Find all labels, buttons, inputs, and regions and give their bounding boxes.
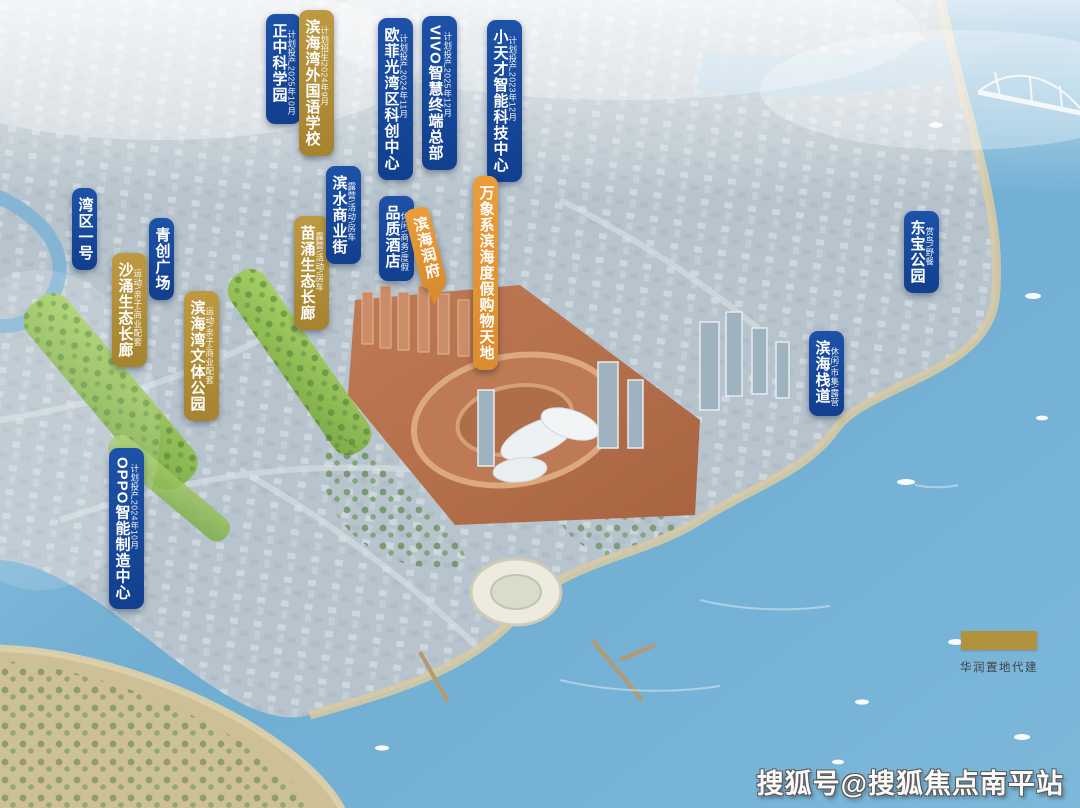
- label-title: 品质酒店: [383, 205, 400, 269]
- label-note: 运动\亲子\商业配套: [133, 269, 143, 347]
- label-title: 滨海湾外国语学校: [303, 19, 320, 147]
- legend-crland: 华润置地代建: [956, 631, 1042, 675]
- label-note: 休闲\市集\露营: [830, 347, 840, 407]
- label-note: 计划投产2025年12月: [443, 32, 453, 117]
- callout-tail: [426, 283, 449, 306]
- label-title: 欧菲光湾区科创中心: [382, 27, 399, 171]
- label-title: 滨水商业街: [330, 175, 347, 255]
- label-title: VIVO智慧终端总部: [426, 25, 443, 161]
- label-title: 滨海湾文体公园: [188, 300, 205, 412]
- label-note: 计划投产2024年10月: [130, 464, 140, 549]
- label-mixc-seaside-mall: 万象系滨海度假购物天地: [473, 176, 498, 370]
- label-qingchuang-plaza: 青创广场: [149, 218, 174, 300]
- label-note: 计划投产2024年11月: [399, 34, 409, 119]
- label-vivo-terminal-hq: VIVO智慧终端总部 计划投产2025年12月: [422, 16, 457, 170]
- label-note: 计划招生2024年9月: [320, 26, 330, 106]
- aerial-masterplan-map: 正中科学园 计划投产2025年10月 滨海湾外国语学校 计划招生2024年9月 …: [0, 0, 1080, 808]
- label-bay-area-no1: 湾区一号: [72, 188, 97, 270]
- label-title: 万象系滨海度假购物天地: [477, 185, 494, 361]
- label-title: 正中科学园: [270, 23, 287, 103]
- label-note: 运动\亲子\商业配套: [205, 307, 215, 385]
- label-miaochong-eco-corridor: 苗涌生态长廊 露营\活动\房车: [294, 216, 329, 330]
- label-note: 计划投产2025年10月: [287, 30, 297, 115]
- label-binhai-boardwalk: 滨海栈道 休闲\市集\露营: [809, 331, 844, 416]
- label-title: OPPO智能制造中心: [113, 457, 130, 600]
- label-title: 东宝公园: [908, 220, 925, 284]
- label-title: 沙涌生态长廊: [116, 262, 133, 358]
- label-binhaiwan-sports-park: 滨海湾文体公园 运动\亲子\商业配套: [184, 291, 219, 421]
- legend-color-swatch: [961, 631, 1037, 650]
- legend-label: 华润置地代建: [956, 659, 1042, 675]
- label-title: 滨海栈道: [813, 340, 830, 404]
- label-note: 计划投产2023年12月: [508, 36, 518, 121]
- label-title: 小天才智能科技中心: [491, 29, 508, 173]
- sohu-watermark: 搜狐号@搜狐焦点南平站: [757, 762, 1064, 801]
- label-binshui-commercial-street: 滨水商业街 露营\活动\房车: [326, 166, 361, 264]
- label-title: 青创广场: [153, 227, 170, 291]
- label-xtc-tech-center: 小天才智能科技中心 计划投产2023年12月: [487, 20, 522, 182]
- label-binhaiwan-foreign-language-school: 滨海湾外国语学校 计划招生2024年9月: [299, 10, 334, 156]
- label-dongbao-park: 东宝公园 赏鸟\野餐: [904, 211, 939, 293]
- aerial-scene-illustration: [0, 0, 1080, 808]
- label-zhengzhong-science-park: 正中科学园 计划投产2025年10月: [266, 14, 301, 124]
- label-note: 赏鸟\野餐: [925, 227, 935, 266]
- label-note: 露营\活动\房车: [315, 232, 325, 292]
- label-title: 苗涌生态长廊: [298, 225, 315, 321]
- label-note: 露营\活动\房车: [347, 182, 357, 242]
- label-oppo-manufacturing-center: OPPO智能制造中心 计划投产2024年10月: [109, 448, 144, 609]
- label-shachong-eco-corridor: 沙涌生态长廊 运动\亲子\商业配套: [112, 253, 147, 367]
- label-title: 湾区一号: [76, 197, 93, 261]
- label-quality-hotel: 品质酒店 休闲\商务\度假: [379, 196, 414, 281]
- label-ofilm-innovation-center: 欧菲光湾区科创中心 计划投产2024年11月: [378, 18, 413, 180]
